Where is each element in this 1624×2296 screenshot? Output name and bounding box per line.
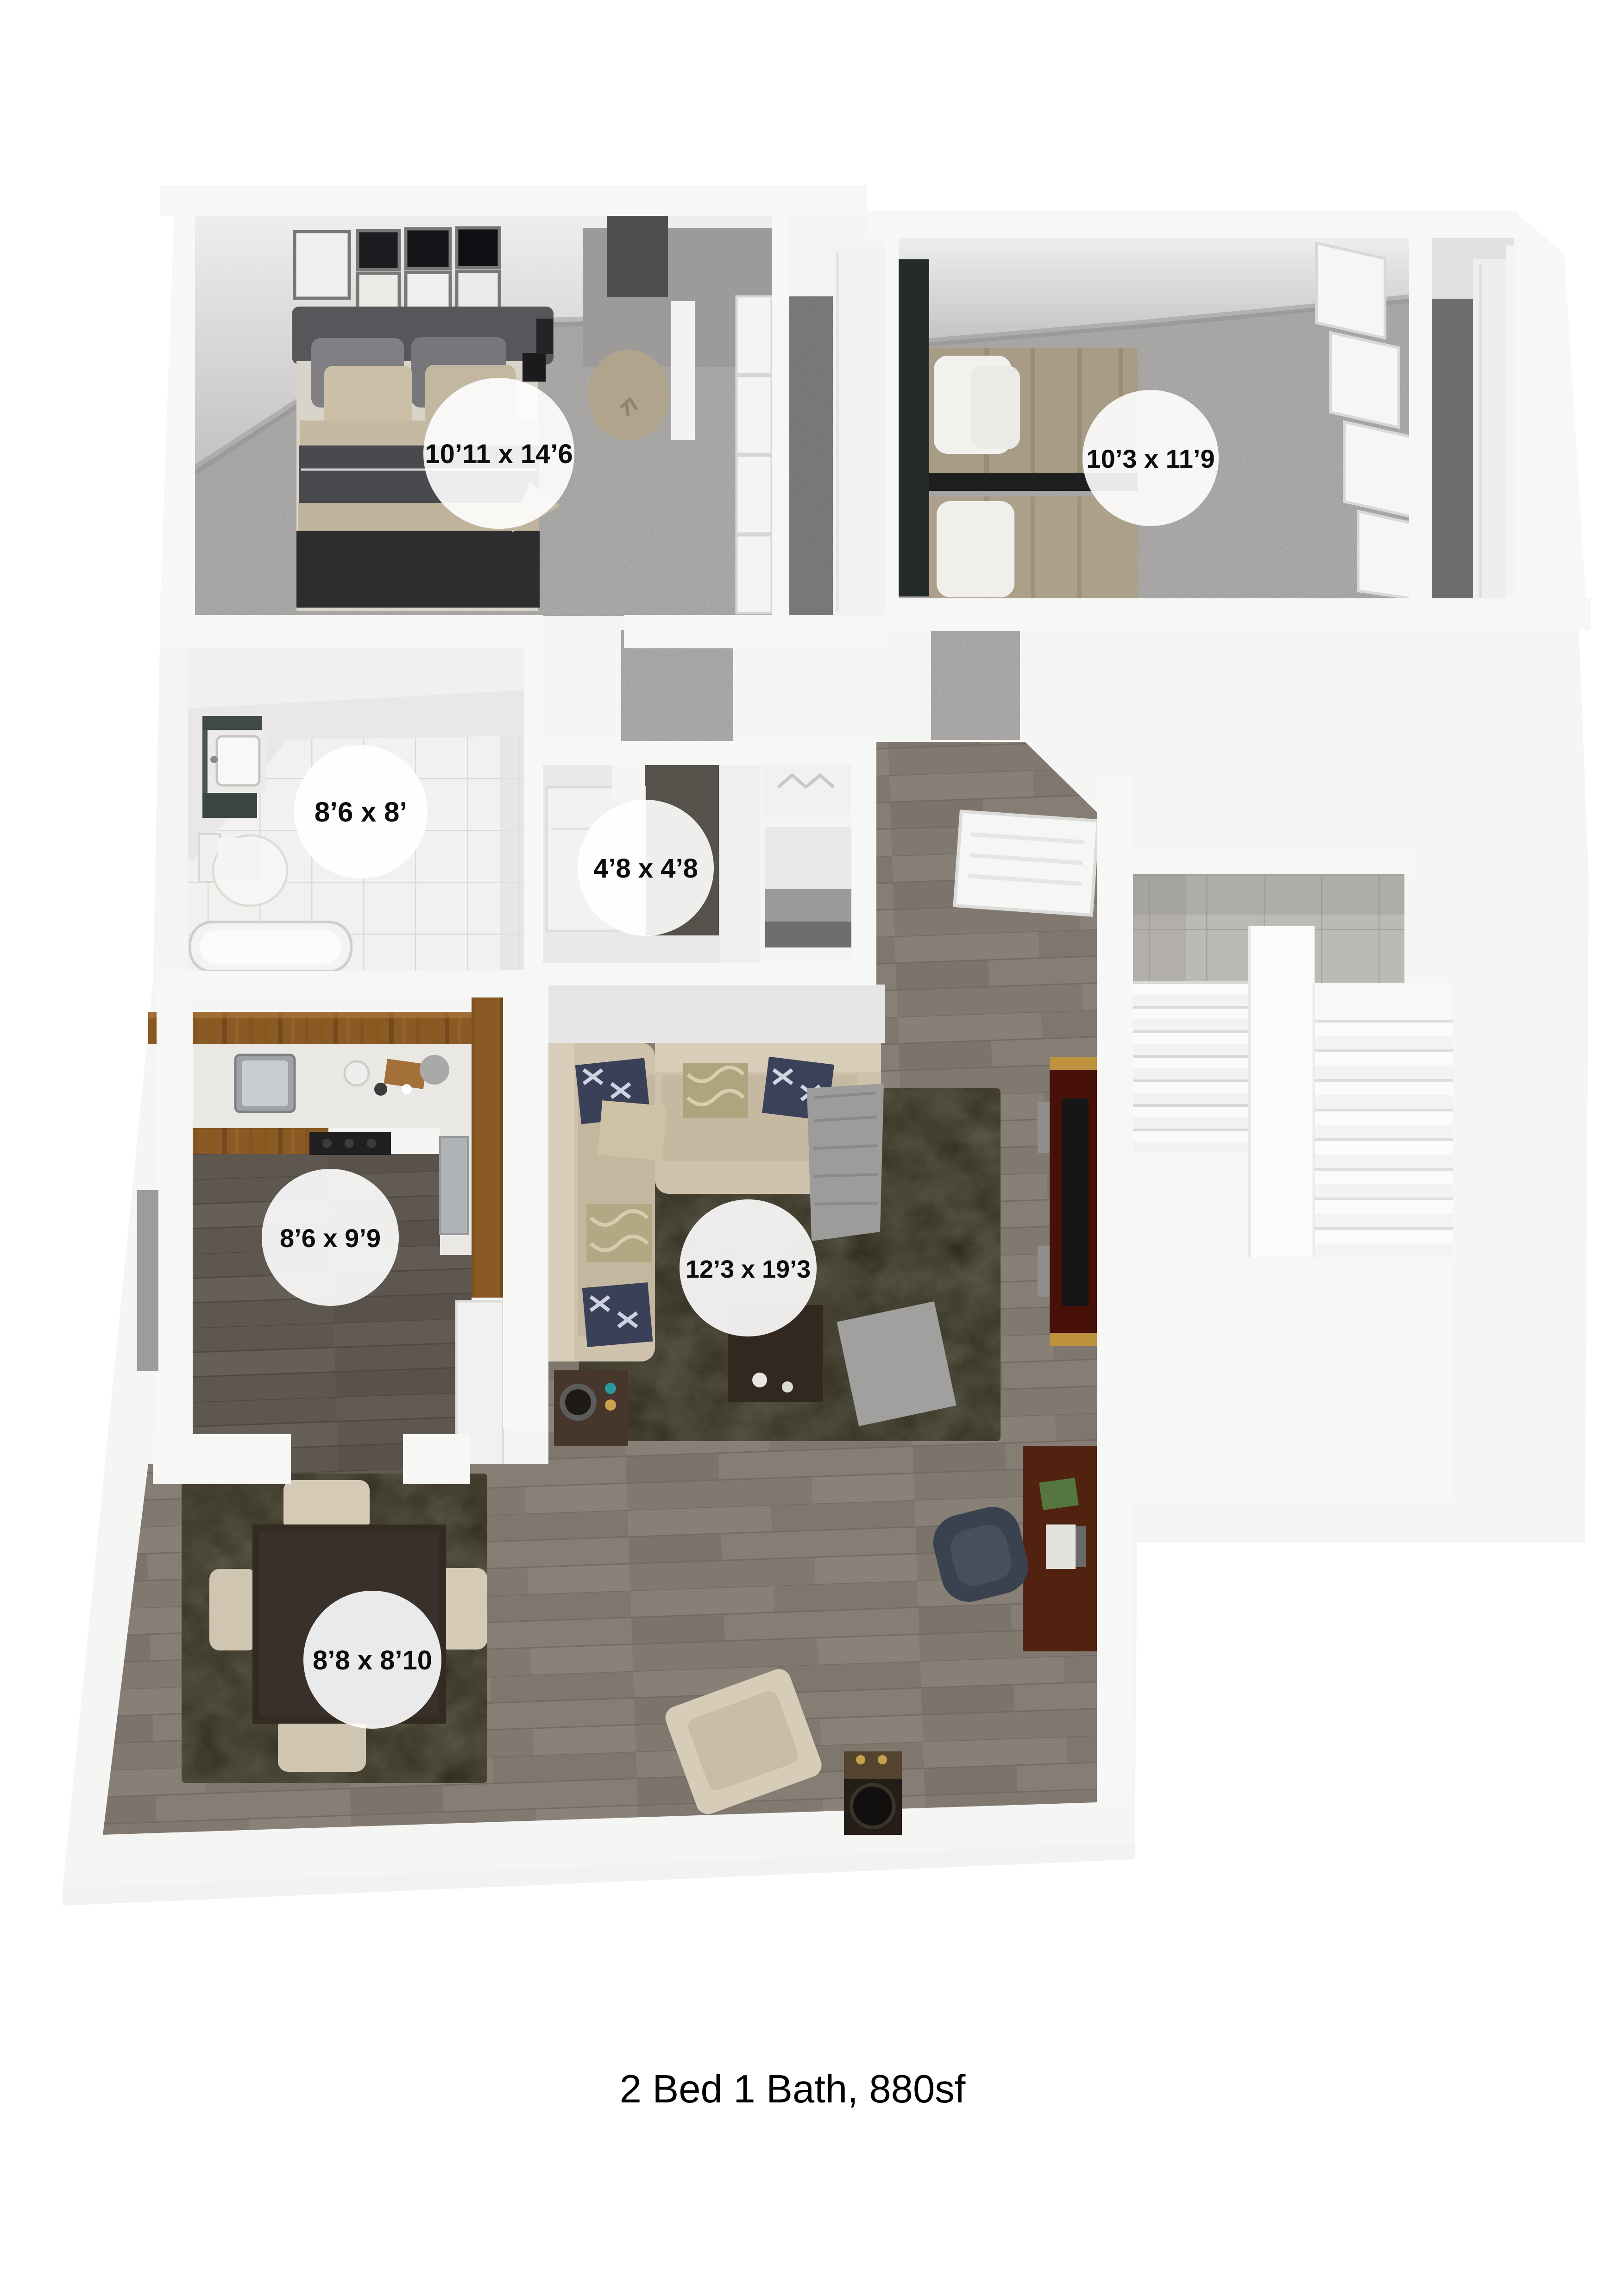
svg-text:10’3 x 11’9: 10’3 x 11’9 — [1086, 444, 1215, 473]
svg-text:10’11 x 14’6: 10’11 x 14’6 — [425, 439, 573, 469]
svg-text:12’3 x 19’3: 12’3 x 19’3 — [686, 1255, 811, 1283]
svg-text:8’6 x 8’: 8’6 x 8’ — [315, 797, 407, 828]
svg-text:8’8 x 8’10: 8’8 x 8’10 — [313, 1645, 432, 1675]
svg-text:4’8 x 4’8: 4’8 x 4’8 — [593, 853, 698, 884]
svg-text:8’6 x 9’9: 8’6 x 9’9 — [280, 1223, 381, 1253]
svg-text:2 Bed 1 Bath, 880sf: 2 Bed 1 Bath, 880sf — [620, 2067, 966, 2111]
